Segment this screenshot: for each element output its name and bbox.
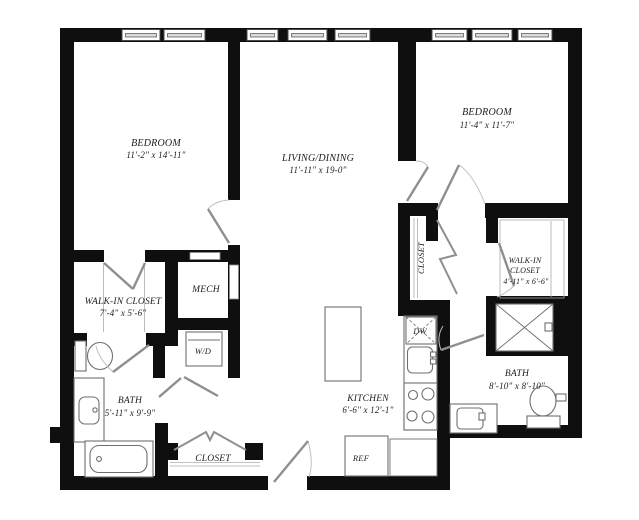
tub-drain (97, 457, 102, 462)
wall-segment (486, 203, 498, 243)
label-bedroom-2-dims: 11'-4" x 11'-7" (460, 120, 515, 130)
door-leaf (407, 167, 428, 201)
door-leaf (208, 209, 229, 243)
window (164, 30, 205, 41)
label-walk-in-closet-2-line1: WALK-IN (509, 256, 542, 265)
counter-return (390, 439, 437, 476)
label-bath-1-dims: 5'-11" x 9'-9" (105, 408, 156, 418)
window (432, 30, 467, 41)
window (518, 30, 552, 41)
label-bedroom-1-name: BEDROOM (131, 138, 181, 149)
label-walk-in-closet-1-dims: 7'-4" x 5'-6" (100, 308, 147, 318)
door-arc (208, 200, 229, 209)
door-arc (497, 286, 514, 297)
label-bedroom-1-dims: 11'-2" x 14'-11" (126, 150, 185, 160)
kitchen-faucet (431, 359, 437, 364)
wall-segment (165, 250, 178, 333)
burner (407, 411, 417, 421)
label-mech: MECH (191, 285, 221, 295)
kitchen-faucet (431, 352, 437, 357)
label-kitchen-dims: 6'-6" x 12'-1" (342, 405, 393, 415)
bifold-door (174, 432, 246, 450)
door-leaf (133, 263, 145, 289)
door-leaf (113, 345, 149, 372)
label-hall-closet: CLOSET (416, 241, 426, 274)
door-leaf (274, 441, 308, 482)
wall-segment (228, 42, 240, 200)
window (288, 30, 327, 41)
label-bath-2-dims: 8'-10" x 8'-10" (489, 381, 545, 391)
wall-segment (153, 345, 165, 378)
window (472, 30, 512, 41)
label-bath-1-name: BATH (118, 396, 143, 406)
window (335, 30, 370, 41)
door-leaf (159, 378, 181, 397)
burner (409, 391, 418, 400)
walls (50, 28, 582, 490)
label-living-dining-dims: 11'-11" x 19-0" (289, 165, 346, 175)
wall-segment (60, 28, 74, 490)
door-leaf (104, 263, 133, 289)
label-walk-in-closet-1-name: WALK-IN CLOSET (85, 297, 162, 307)
window (247, 30, 278, 41)
door-leaf (184, 377, 218, 396)
window (122, 30, 160, 41)
shower-handle (545, 323, 552, 331)
label-refrigerator: REF (352, 453, 370, 463)
door-arc (459, 165, 485, 204)
label-washer-dryer: W/D (195, 346, 212, 356)
label-bedroom-2-name: BEDROOM (462, 107, 512, 118)
door-arc (416, 161, 428, 167)
toilet-tank (75, 341, 86, 371)
kitchen-island (325, 307, 361, 381)
label-walk-in-closet-2-line2: CLOSET (510, 266, 540, 275)
wall-segment (568, 28, 582, 438)
wall-segment (146, 333, 178, 346)
floor-plan-page: BEDROOM 11'-2" x 14'-11" LIVING/DINING 1… (0, 0, 639, 520)
mech-louver-door (230, 265, 239, 299)
label-walk-in-closet-2-dims: 4'-11" x 6'-6" (503, 277, 549, 286)
wall-segment (485, 203, 582, 218)
faucet (479, 413, 485, 420)
wall-segment (398, 42, 416, 161)
windows (122, 30, 552, 41)
toilet-tank (527, 416, 560, 428)
door-leaf (437, 165, 459, 210)
door-arc (308, 441, 311, 477)
burner (422, 411, 434, 423)
wall-segment (307, 476, 450, 490)
bifold-door (437, 220, 457, 294)
label-dishwasher: DW (412, 326, 427, 336)
wall-segment (426, 203, 438, 241)
wall-segment (245, 443, 263, 460)
mech-vent-top (190, 253, 220, 260)
paper-holder (556, 394, 566, 401)
kitchen-sink (408, 347, 433, 373)
wall-segment (437, 300, 450, 490)
wall-segment (74, 250, 104, 262)
faucet (93, 408, 97, 412)
floor-plan: BEDROOM 11'-2" x 14'-11" LIVING/DINING 1… (0, 0, 639, 520)
label-bath-2-name: BATH (505, 369, 530, 379)
label-kitchen-name: KITCHEN (346, 394, 389, 404)
wall-segment (398, 216, 410, 302)
label-entry-closet: CLOSET (195, 454, 231, 464)
wall-segment (50, 427, 62, 443)
burner (422, 388, 434, 400)
wall-segment (165, 443, 178, 460)
label-living-dining-name: LIVING/DINING (281, 153, 354, 164)
